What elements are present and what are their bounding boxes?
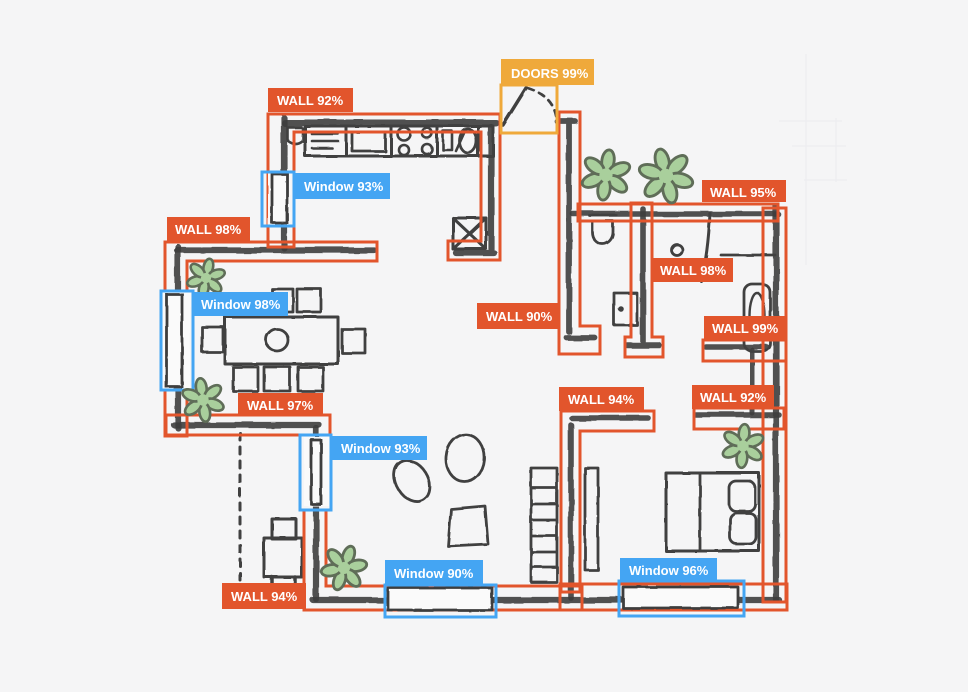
svg-text:Window 93%: Window 93% xyxy=(341,441,421,456)
svg-text:WALL 95%: WALL 95% xyxy=(710,185,777,200)
svg-text:WALL 99%: WALL 99% xyxy=(712,321,779,336)
svg-text:Window 96%: Window 96% xyxy=(629,563,709,578)
svg-text:DOORS 99%: DOORS 99% xyxy=(511,66,589,81)
svg-text:WALL 90%: WALL 90% xyxy=(486,309,553,324)
svg-text:WALL 92%: WALL 92% xyxy=(700,390,767,405)
svg-text:WALL 97%: WALL 97% xyxy=(247,398,314,413)
svg-text:Window 90%: Window 90% xyxy=(394,566,474,581)
svg-text:Window 98%: Window 98% xyxy=(201,297,281,312)
svg-text:WALL 98%: WALL 98% xyxy=(660,263,727,278)
svg-text:WALL 92%: WALL 92% xyxy=(277,93,344,108)
svg-text:WALL 94%: WALL 94% xyxy=(231,589,298,604)
svg-text:WALL 98%: WALL 98% xyxy=(175,222,242,237)
svg-text:WALL 94%: WALL 94% xyxy=(568,392,635,407)
svg-text:Window 93%: Window 93% xyxy=(304,179,384,194)
